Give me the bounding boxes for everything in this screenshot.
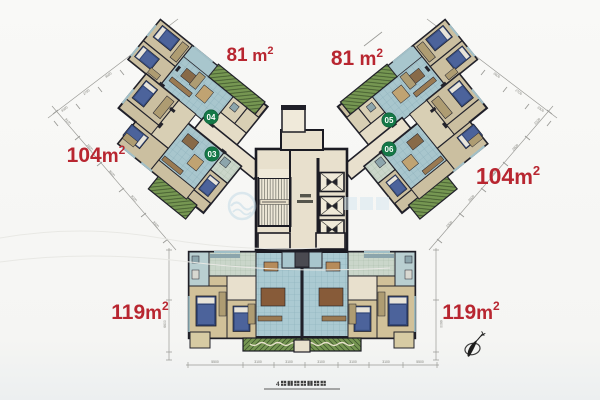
svg-text:3100: 3100 bbox=[254, 360, 262, 364]
svg-text:3100: 3100 bbox=[382, 360, 390, 364]
svg-text:81 m2: 81 m2 bbox=[331, 46, 384, 70]
svg-text:04: 04 bbox=[207, 113, 216, 122]
svg-text:5500: 5500 bbox=[211, 360, 219, 364]
svg-text:104m2: 104m2 bbox=[67, 143, 126, 167]
svg-text:5500: 5500 bbox=[416, 360, 424, 364]
svg-text:3100: 3100 bbox=[349, 360, 357, 364]
svg-text:81 m2: 81 m2 bbox=[226, 45, 273, 66]
svg-text:03: 03 bbox=[208, 150, 217, 159]
svg-text:06: 06 bbox=[385, 145, 394, 154]
svg-text:6600: 6600 bbox=[163, 320, 167, 328]
svg-text:119m2: 119m2 bbox=[442, 299, 500, 324]
svg-text:3100: 3100 bbox=[317, 360, 325, 364]
svg-text:104m2: 104m2 bbox=[476, 163, 540, 189]
svg-text:3100: 3100 bbox=[285, 360, 293, 364]
svg-text:119m2: 119m2 bbox=[111, 299, 169, 324]
svg-text:05: 05 bbox=[385, 116, 394, 125]
svg-text:4: 4 bbox=[276, 381, 280, 388]
